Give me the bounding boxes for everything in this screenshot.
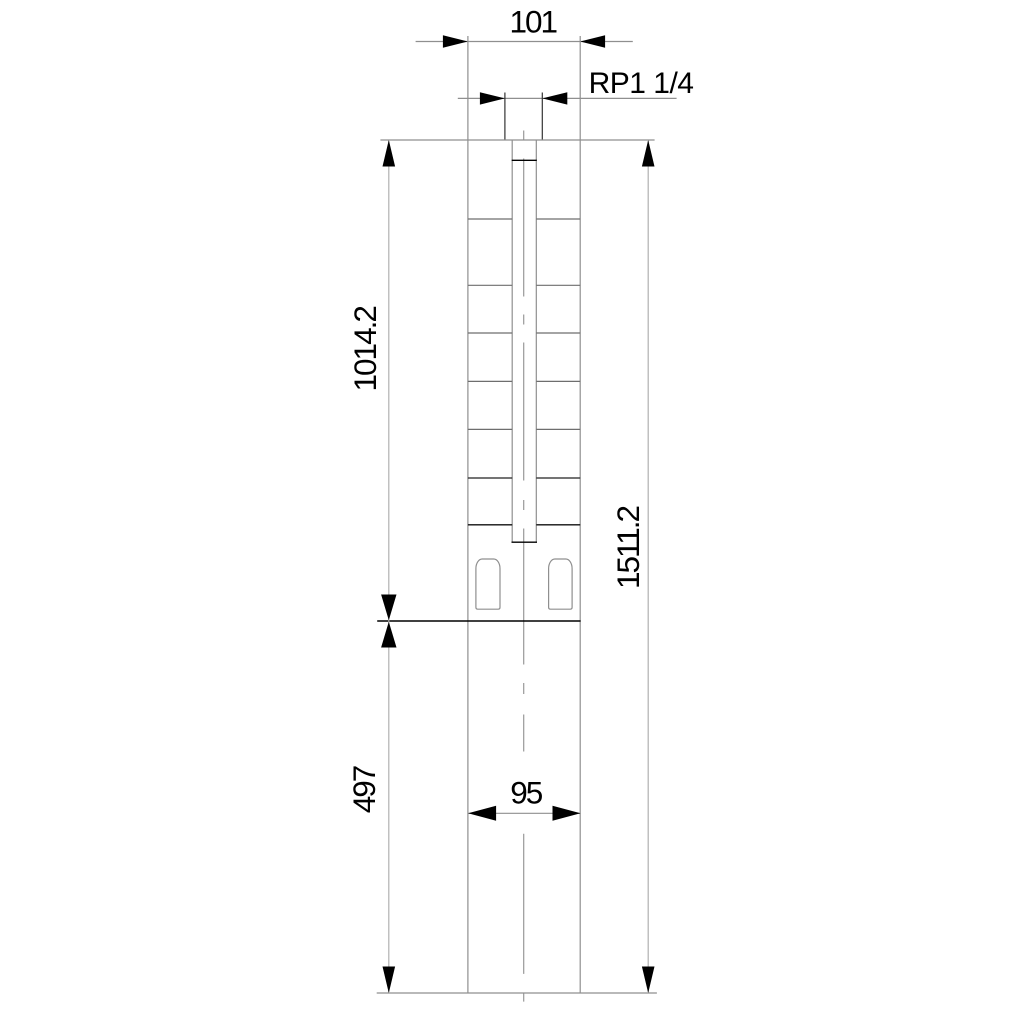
svg-text:95: 95	[510, 775, 543, 811]
svg-text:497: 497	[346, 766, 382, 813]
svg-text:RP1 1/4: RP1 1/4	[589, 67, 694, 100]
svg-text:101: 101	[510, 4, 557, 40]
svg-text:1014.2: 1014.2	[347, 307, 383, 392]
svg-text:1511.2: 1511.2	[610, 507, 646, 589]
